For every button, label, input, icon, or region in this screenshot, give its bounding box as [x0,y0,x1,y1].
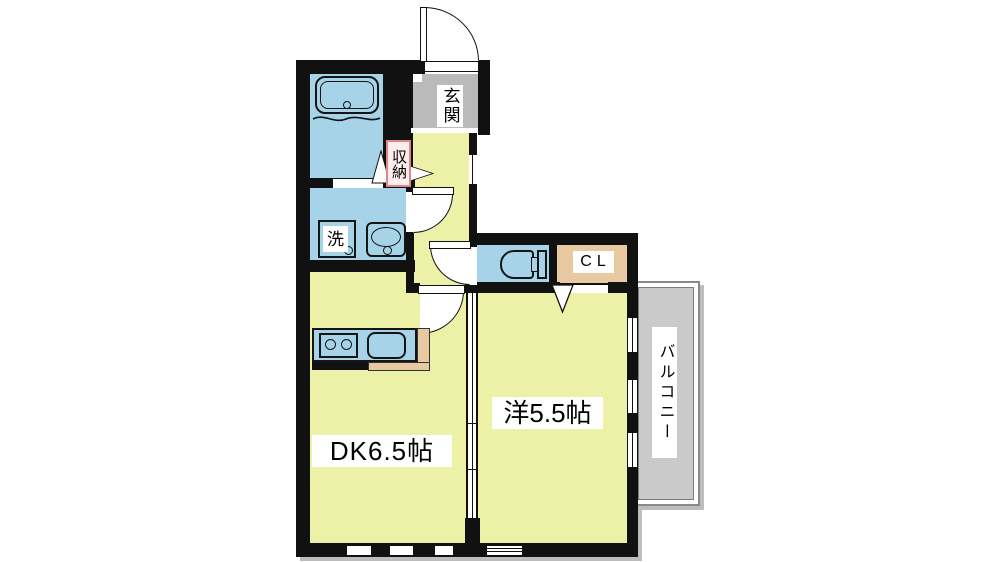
laundry-label: 洗 [323,226,348,252]
entrance-door-swing [424,7,479,61]
dining-kitchen-label: DK6.5帖 [312,435,452,467]
toilet-door-opening [469,247,477,285]
entrance-label: 玄関 [437,85,463,127]
window-east-2 [628,380,637,413]
stove-burner-right-icon [341,339,352,350]
window-east-1 [628,318,637,352]
window-east-3 [628,433,637,467]
wall-toilet-south [465,282,560,293]
sliding-door-partition [466,293,478,518]
kitchen-counter-edge-h [368,362,430,371]
wall-closet-south-right [608,282,638,293]
wall-washroom-dk [296,260,415,272]
entrance-door-leaf [424,61,479,72]
wall-toilet-closet-divider [549,245,557,285]
wall-toilet-block-top [469,233,638,245]
wall-left [296,60,310,557]
toilet-tank-icon [537,250,547,279]
hall-window [469,155,477,184]
window-dk-south-3 [435,546,453,555]
toilet-door-leaf [429,241,471,249]
storage-label: 収納 [386,140,411,187]
stove-burner-left-icon [325,339,336,350]
western-room-label: 洋5.5帖 [492,397,603,429]
bath-edge-wave-icon [310,110,383,126]
balcony-label: バルコニー [652,327,677,458]
vanity-faucet-icon [383,246,392,255]
closet-folding-door-icon [551,284,575,314]
closet-label: CL [573,251,614,273]
toilet-bowl-icon [500,250,534,279]
vanity-basin-icon [371,227,401,247]
entrance-step-line [411,128,478,133]
floorplan-canvas: 玄関 収納 洗 CL DK6.5帖 洋5.5帖 バルコニー [0,0,1000,562]
window-dk-south-1 [347,546,371,555]
wall-top-right [478,60,490,135]
storage-door-mark-icon [409,165,434,182]
wall-top [296,60,425,74]
wall-partition-bottom-post [465,518,480,557]
window-dk-south-2 [390,546,413,555]
shadow-bottom [300,557,642,561]
wall-kitchen-stub [312,362,368,370]
wall-hall-east [469,133,477,247]
shadow-right [638,509,642,557]
washroom-door-leaf [412,187,454,195]
bathtub-drain-icon [343,101,351,109]
dk-door-leaf [418,285,465,294]
entrance-door-open-leaf [420,7,427,62]
window-western-south [487,546,522,555]
kitchen-sink-icon [367,332,406,359]
